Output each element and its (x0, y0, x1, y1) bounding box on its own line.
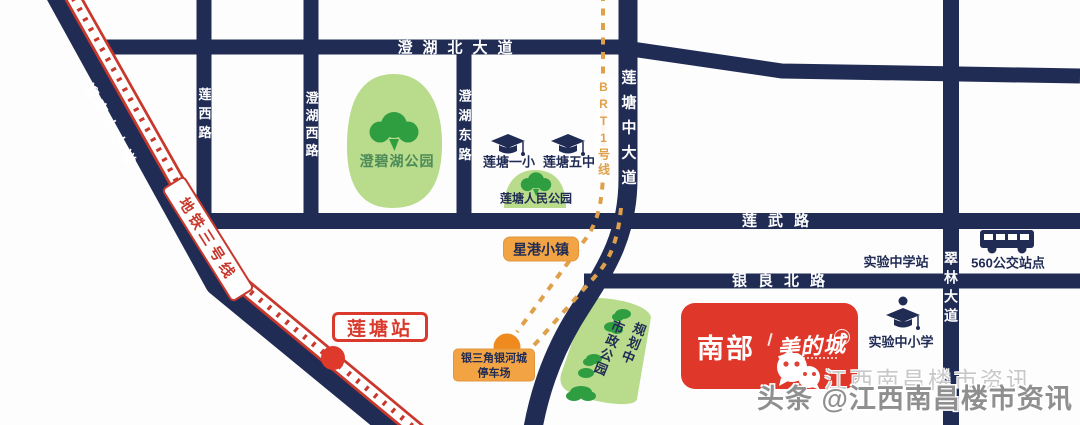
road-label-cuilin: 翠林大道 (941, 251, 961, 327)
watermark-toutiao-text: 头条 @江西南昌楼市资讯 (757, 377, 1073, 416)
brand-divider (767, 333, 772, 346)
map-canvas: 澄湖北大道 莲武路 银良北路 莲西路 澄湖西路 澄湖东路 莲塘中大道 翠林大道 … (0, 0, 1080, 425)
bus-stop-560-label: 560公交站点 (971, 253, 1045, 272)
metro-station-dot (321, 346, 345, 370)
metro-line-3-track (62, 0, 424, 425)
bus-icon (980, 230, 1034, 254)
road-label-chenghu-east: 澄湖东路 (455, 89, 474, 167)
liantang-station-label: 莲塘站 (332, 312, 428, 342)
parking-lot-line2: 停车场 (454, 366, 534, 381)
liantang-no1-primary-label: 莲塘一小 (483, 152, 535, 171)
road-chenghu-north-ave (96, 47, 1080, 76)
road-label-lianwu: 莲武路 (742, 210, 820, 231)
graduation-cap-icon (886, 308, 920, 330)
parking-lot-label: 银三角银河城 停车场 (453, 349, 535, 382)
road-label-chenghu-north: 澄湖北大道 (397, 37, 522, 58)
road-label-liantang-middle: 莲塘中大道 (618, 70, 639, 195)
renmin-park-label: 莲塘人民公园 (500, 190, 572, 207)
brt-line-label: BRT1号线 (596, 78, 613, 180)
road-label-lianxi: 莲西路 (195, 88, 214, 145)
school-point-dot (899, 297, 908, 306)
liantang-no5-middle-label: 莲塘五中 (543, 152, 595, 171)
road-label-chenghu-west: 澄湖西路 (302, 91, 321, 161)
road-label-yinliang-north: 银良北路 (732, 270, 836, 291)
brand-badge-icon (834, 329, 850, 345)
chengbi-lake-park-label: 澄碧湖公园 (360, 151, 435, 171)
experimental-primary-middle-label: 实验中小学 (868, 332, 933, 351)
xinggang-town-label: 星港小镇 (503, 237, 579, 262)
brand-name: 南部 (697, 327, 755, 366)
parking-lot-line1: 银三角银河城 (454, 352, 534, 367)
experimental-school-station-label: 实验中学站 (863, 252, 928, 271)
